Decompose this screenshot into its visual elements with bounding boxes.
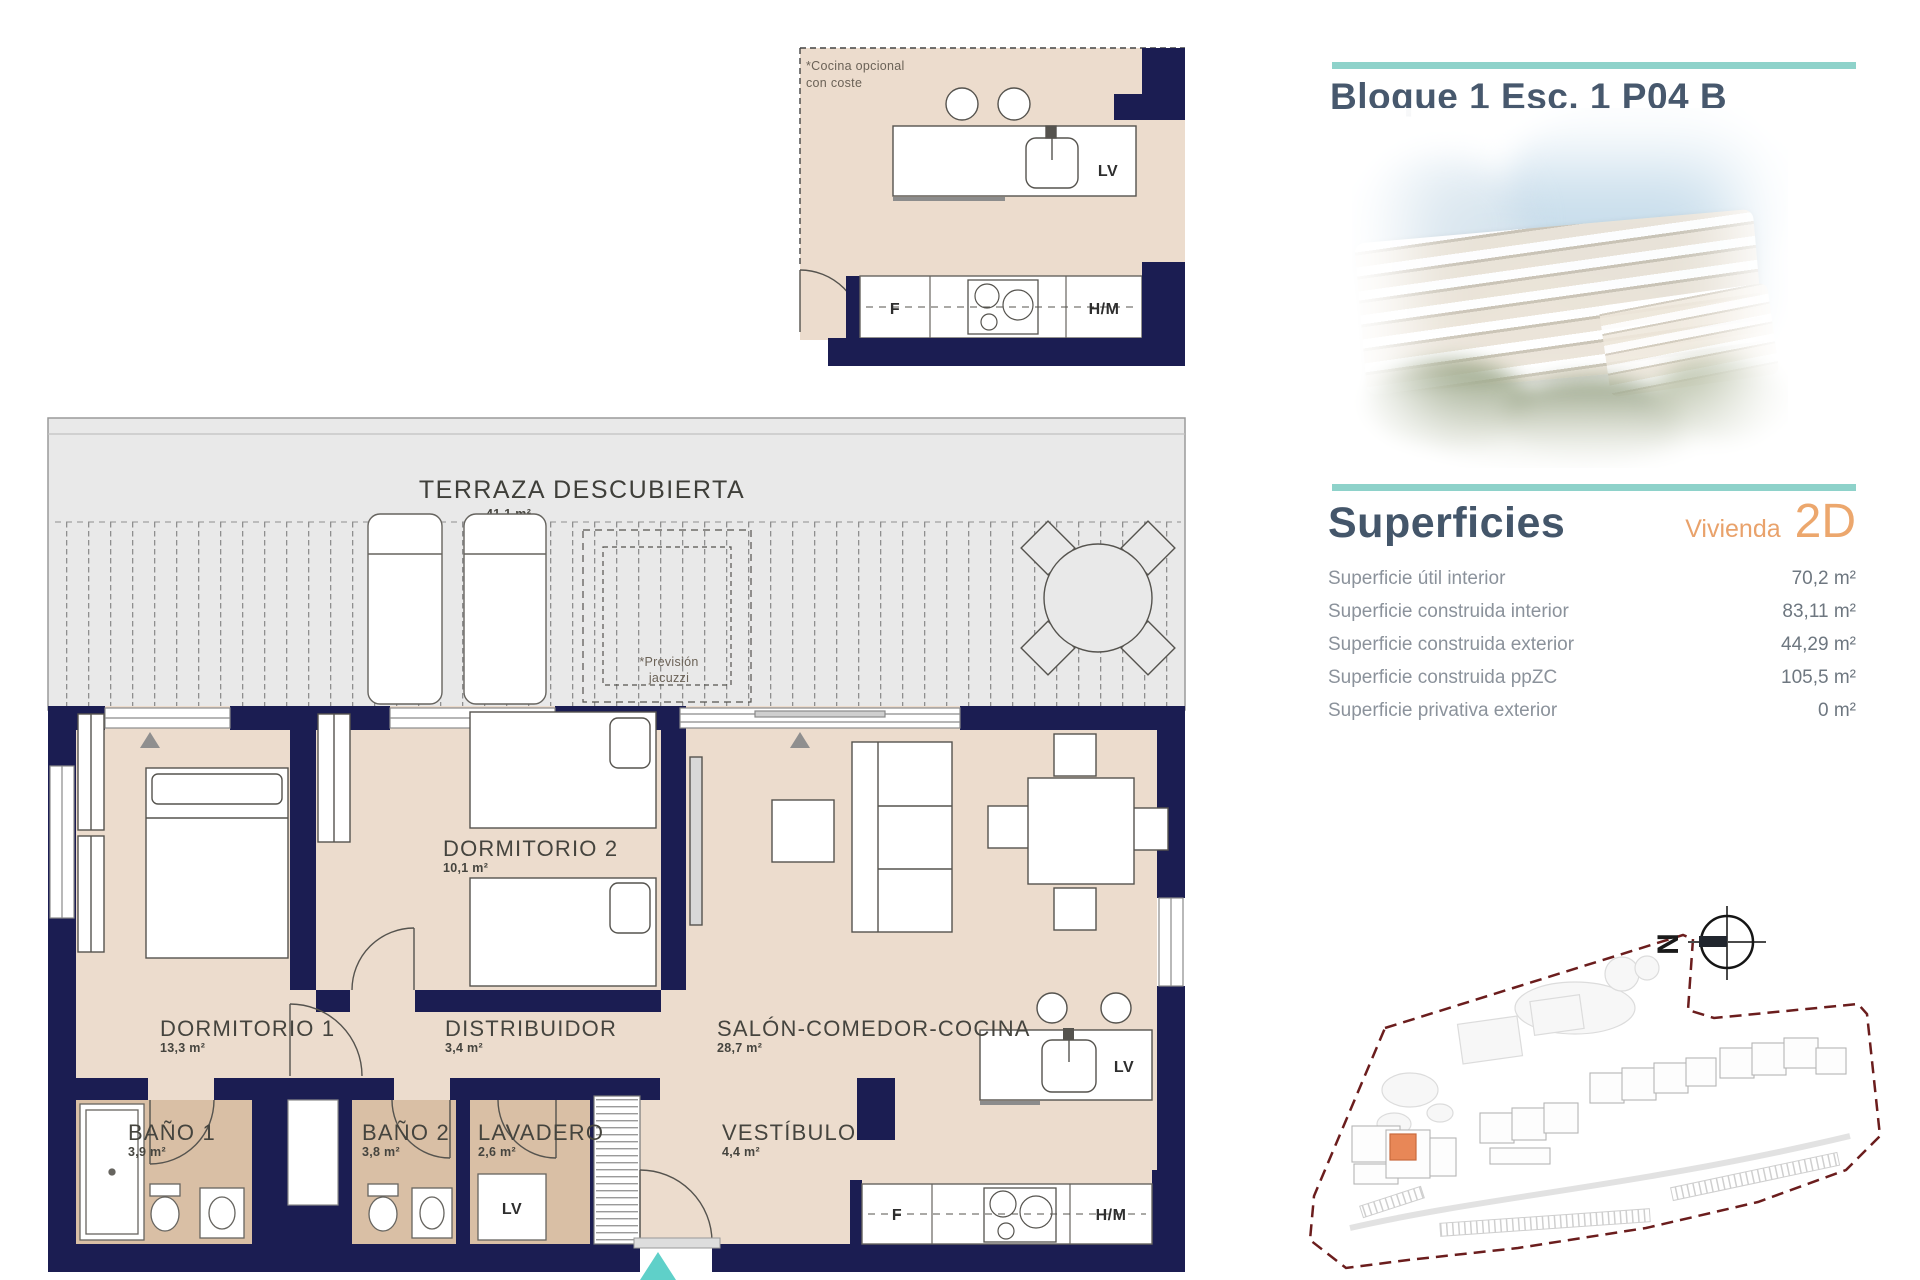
room-label-bano2: BAÑO 2 — [362, 1120, 450, 1145]
kitchen-detail-counter — [828, 262, 1185, 366]
table-row: Superficie construida interior 83,11 m² — [1328, 595, 1856, 628]
compass: N — [1652, 906, 1766, 980]
kitchen-detail-lv-label: LV — [1098, 163, 1118, 180]
surface-label: Superficie construida interior — [1328, 601, 1569, 623]
compass-needle — [1699, 936, 1727, 947]
kitchen-fridge-label: F — [892, 1207, 902, 1224]
jacuzzi-note-2: jacuzzi — [648, 671, 689, 685]
room-area-lavadero: 2,6 m² — [478, 1145, 516, 1159]
room-area-dormitorio1: 13,3 m² — [160, 1041, 205, 1055]
utility-closet — [594, 1096, 640, 1244]
table-row: Superficie construida ppZC 105,5 m² — [1328, 661, 1856, 694]
kitchen-detail-fridge-label: F — [890, 301, 900, 318]
surface-label: Superficie construida exterior — [1328, 634, 1574, 656]
room-area-bano1: 3,9 m² — [128, 1145, 166, 1159]
highlighted-block — [1390, 1134, 1416, 1160]
terrace-name: TERRAZA DESCUBIERTA — [419, 476, 745, 504]
room-area-dormitorio2: 10,1 m² — [443, 861, 488, 875]
superficies-rule — [1332, 484, 1856, 491]
apartment: LV F H/M LV — [48, 706, 1185, 1280]
surface-value: 83,11 m² — [1782, 601, 1856, 623]
vivienda-code: 2D — [1795, 494, 1856, 549]
kitchen-hm-label: H/M — [1096, 1207, 1127, 1224]
kitchen-detail-inset: *Cocina opcional con coste LV F — [800, 48, 1185, 366]
title-rule — [1332, 62, 1856, 69]
table-row: Superficie privativa exterior 0 m² — [1328, 694, 1856, 727]
photo-fade — [1352, 108, 1788, 468]
table-row: Superficie útil interior 70,2 m² — [1328, 562, 1856, 595]
surface-label: Superficie privativa exterior — [1328, 700, 1557, 722]
room-label-dormitorio1: DORMITORIO 1 — [160, 1016, 335, 1041]
building-rendering — [1352, 108, 1788, 468]
superficies-table: Superficie útil interior 70,2 m² Superfi… — [1328, 562, 1856, 727]
terrace: TERRAZA DESCUBIERTA 41,1 m² *Previsión j… — [48, 418, 1185, 710]
room-label-salon: SALÓN-COMEDOR-COCINA — [717, 1016, 1031, 1041]
surface-value: 0 m² — [1818, 700, 1856, 722]
room-label-distribuidor: DISTRIBUIDOR — [445, 1016, 617, 1041]
kitchen-detail-hm-label: H/M — [1089, 301, 1120, 318]
room-label-lavadero: LAVADERO — [478, 1120, 604, 1145]
vivienda-label: Vivienda — [1685, 515, 1780, 544]
compass-north-label: N — [1652, 933, 1685, 955]
surface-label: Superficie útil interior — [1328, 568, 1505, 590]
room-area-vestibulo: 4,4 m² — [722, 1145, 760, 1159]
surface-value: 70,2 m² — [1792, 568, 1856, 590]
surface-label: Superficie construida ppZC — [1328, 667, 1557, 689]
terrace-table-set — [1021, 521, 1175, 675]
site-plan: N — [1290, 898, 1920, 1280]
surface-value: 105,5 m² — [1781, 667, 1856, 689]
room-label-bano1: BAÑO 1 — [128, 1120, 216, 1145]
floorplan-drawing: *Cocina opcional con coste LV F — [0, 0, 1260, 1280]
site-buildings — [1352, 1038, 1846, 1184]
entry-sill — [634, 1238, 720, 1248]
kitchen-detail-note-2: con coste — [806, 76, 862, 90]
kitchen-detail-note-1: *Cocina opcional — [806, 59, 905, 73]
kitchen-lv-label: LV — [1114, 1059, 1134, 1076]
surface-value: 44,29 m² — [1781, 634, 1856, 656]
room-label-dormitorio2: DORMITORIO 2 — [443, 836, 618, 861]
entry-arrow — [640, 1252, 676, 1280]
superficies-heading: Superficies — [1328, 499, 1565, 548]
installation-shaft — [288, 1100, 338, 1205]
laundry-lv-label: LV — [502, 1201, 522, 1218]
room-area-salon: 28,7 m² — [717, 1041, 762, 1055]
room-label-vestibulo: VESTÍBULO — [722, 1120, 856, 1145]
room-area-distribuidor: 3,4 m² — [445, 1041, 483, 1055]
terrace-hatch — [55, 522, 1181, 706]
room-area-bano2: 3,8 m² — [362, 1145, 400, 1159]
table-row: Superficie construida exterior 44,29 m² — [1328, 628, 1856, 661]
jacuzzi-note-1: *Previsión — [639, 655, 698, 669]
